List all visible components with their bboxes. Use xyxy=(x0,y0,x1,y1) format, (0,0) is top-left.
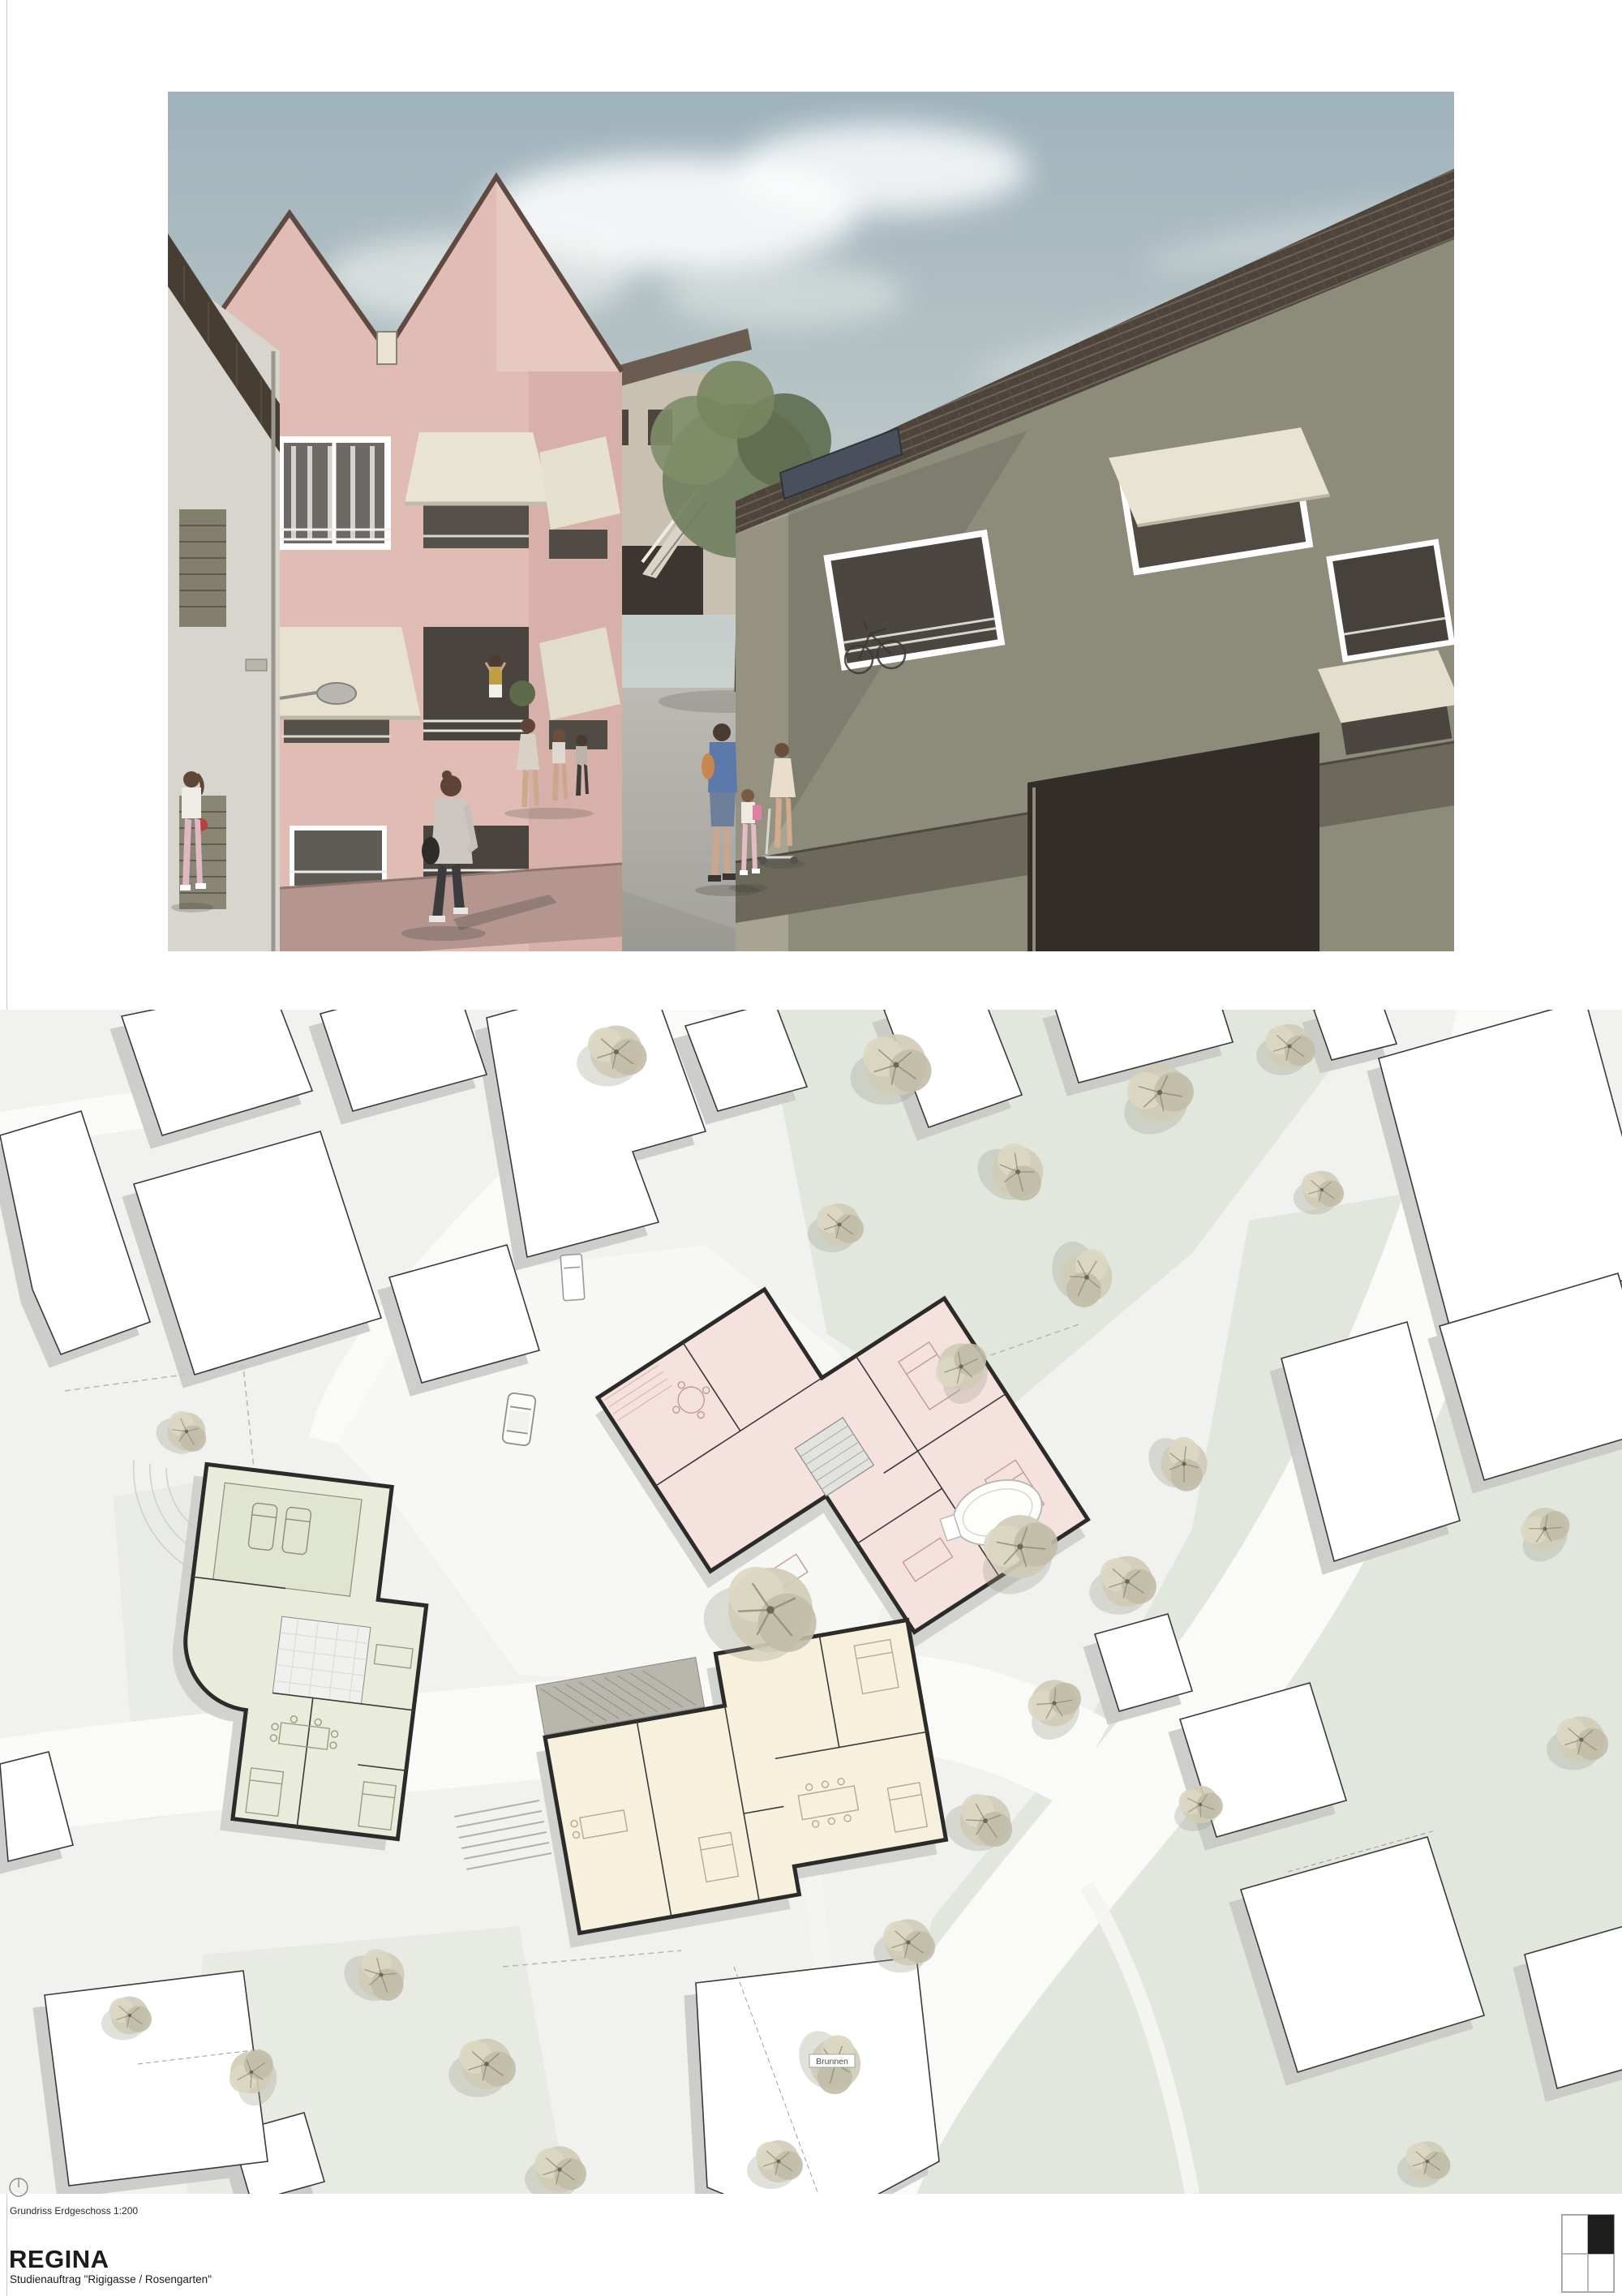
presentation-sheet: { "sheet": { "title": "REGINA", "subtitl… xyxy=(0,0,1622,2296)
project-subtitle: Studienauftrag "Rigigasse / Rosengarten" xyxy=(10,2273,212,2285)
car xyxy=(502,1393,536,1446)
pink-window xyxy=(277,436,391,550)
rendering-svg xyxy=(168,92,1454,951)
site-plan-svg: Brunnen xyxy=(0,1010,1622,2194)
pink-awning-window xyxy=(405,432,551,548)
page-indicator-cell xyxy=(1562,2254,1588,2293)
van xyxy=(560,1254,585,1301)
page-indicator-cell xyxy=(1562,2215,1588,2254)
page-indicator xyxy=(1561,2214,1615,2293)
pink-loggia xyxy=(423,627,535,740)
brunnen-label: Brunnen xyxy=(809,2054,855,2067)
page-indicator-cell xyxy=(1588,2215,1614,2254)
project-title: REGINA xyxy=(9,2245,109,2274)
exterior-rendering xyxy=(168,92,1454,951)
svg-text:Brunnen: Brunnen xyxy=(816,2057,848,2066)
page-indicator-cell xyxy=(1588,2254,1614,2293)
plan-caption: Grundriss Erdgeschoss 1:200 xyxy=(10,2205,138,2217)
north-arrow-icon xyxy=(8,2177,29,2198)
site-plan-drawing: Brunnen xyxy=(0,1010,1622,2194)
